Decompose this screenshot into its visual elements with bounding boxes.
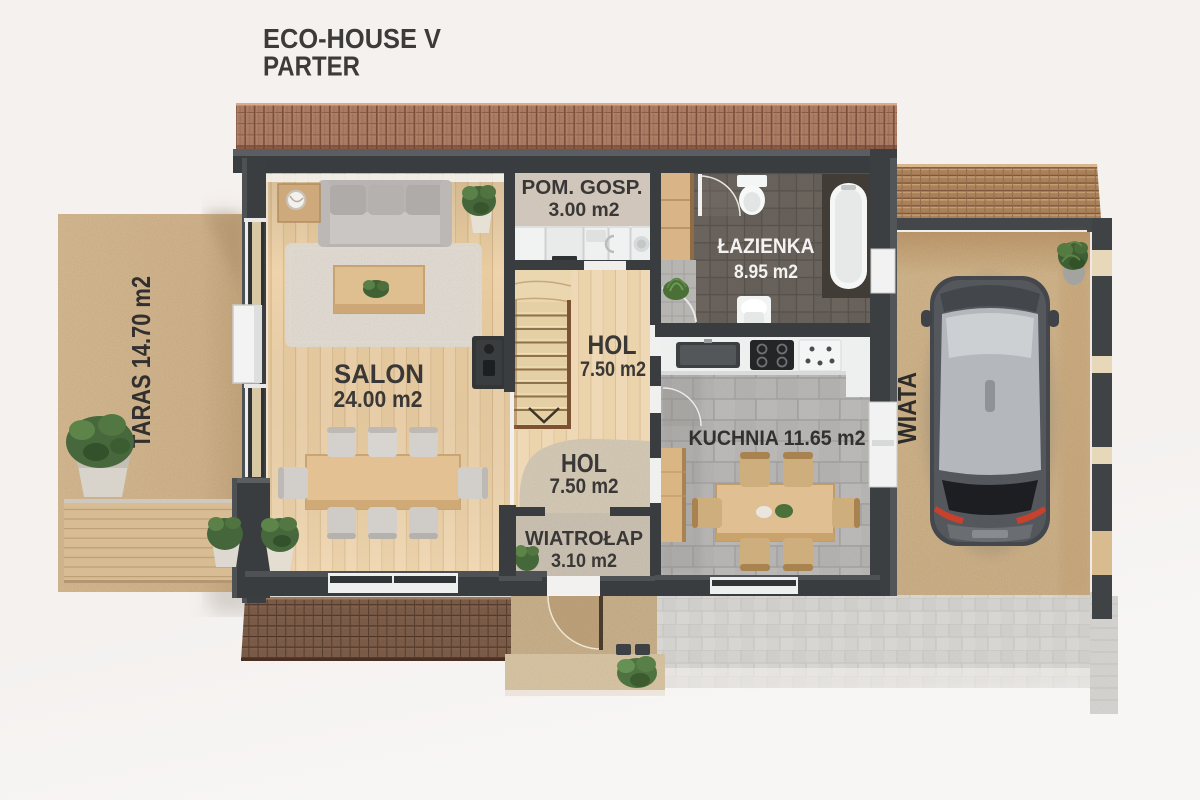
svg-text:7.50 m2: 7.50 m2 xyxy=(550,475,619,498)
svg-text:PARTER: PARTER xyxy=(263,51,360,82)
svg-text:3.10 m2: 3.10 m2 xyxy=(551,551,617,572)
svg-text:ECO-HOUSE V: ECO-HOUSE V xyxy=(263,23,441,54)
svg-text:8.95 m2: 8.95 m2 xyxy=(734,262,798,283)
svg-text:7.50 m2: 7.50 m2 xyxy=(580,358,646,381)
svg-text:HOL: HOL xyxy=(588,330,637,360)
svg-text:HOL: HOL xyxy=(561,448,607,478)
svg-text:POM. GOSP.: POM. GOSP. xyxy=(522,177,643,199)
svg-text:WIATROŁAP: WIATROŁAP xyxy=(525,528,643,550)
svg-text:SALON: SALON xyxy=(334,359,424,389)
svg-text:24.00 m2: 24.00 m2 xyxy=(334,386,423,412)
svg-text:ŁAZIENKA: ŁAZIENKA xyxy=(718,235,815,258)
svg-text:KUCHNIA 11.65 m2: KUCHNIA 11.65 m2 xyxy=(689,427,866,450)
svg-text:3.00 m2: 3.00 m2 xyxy=(549,200,620,221)
svg-text:TARAS 14.70 m2: TARAS 14.70 m2 xyxy=(126,276,156,448)
